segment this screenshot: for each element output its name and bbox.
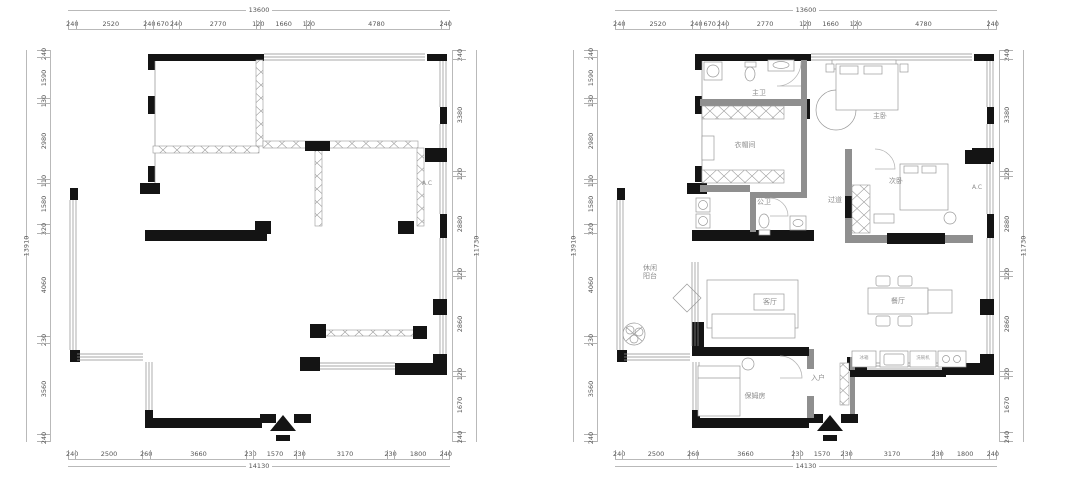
dim-total-top: 13600 (615, 6, 997, 14)
dim-segment: 3380 (1000, 59, 1013, 171)
room-label-ac-right: A.C (972, 184, 982, 192)
dim-segment: 1800 (941, 450, 989, 459)
room-label-dining-room: 餐厅 (891, 297, 905, 305)
dim-segment: 2770 (726, 20, 802, 29)
dim-segment: 1670 (1000, 376, 1013, 432)
room-label-second-bedroom: 次卧 (889, 177, 903, 185)
dim-segment: 2520 (623, 20, 693, 29)
dim-segment: 2500 (622, 450, 688, 459)
balcony-line1: 休闲 (643, 264, 657, 272)
room-label-hallway: 过道 (828, 196, 842, 204)
dim-segment: 240 (1000, 50, 1013, 59)
dim-segment: 2860 (1000, 276, 1013, 371)
dim-segment: 240 (692, 20, 700, 29)
room-label-entry: 入户 (811, 374, 825, 382)
room-label-nanny-room: 保姆房 (745, 392, 766, 400)
dim-segment: 1570 (800, 450, 842, 459)
dim-segment: 4780 (857, 20, 988, 29)
dim-segment: 260 (689, 450, 697, 459)
dim-segment: 240 (988, 20, 997, 29)
room-label-living-room: 客厅 (763, 298, 777, 306)
dim-segment: 2980 (584, 103, 597, 179)
dim-chain-right: 2403380120288012028601201670240 (999, 50, 1013, 442)
dim-total-left: 13910 (567, 50, 579, 442)
dim-total-bottom: 14130 (615, 462, 997, 470)
room-label-dishwasher: 洗碗机 (916, 355, 930, 363)
dim-chain-top: 2402520240670240277012016601204780240 (615, 20, 997, 30)
dim-segment: 240 (719, 20, 727, 29)
room-label-master-bedroom: 主卧 (873, 112, 887, 120)
room-label-fridge: 冰箱 (860, 355, 869, 363)
walls-drawing-furnished (612, 46, 997, 446)
dim-segment: 1580 (584, 183, 597, 224)
room-label-guest-bath: 公卫 (757, 198, 771, 206)
dim-segment: 1590 (584, 57, 597, 98)
dim-segment: 240 (989, 450, 997, 459)
dim-segment: 3170 (850, 450, 934, 459)
room-label-balcony: 休闲 阳台 (643, 264, 657, 280)
dim-segment: 4060 (584, 233, 597, 337)
dim-segment: 320 (584, 224, 597, 233)
dim-total-right: 11730 (1017, 50, 1029, 442)
floor-plan-sheet: 13600 2402520240670240277012016601204780… (0, 0, 1080, 491)
room-label-master-bath: 主卫 (752, 89, 766, 97)
dim-segment: 3560 (584, 343, 597, 434)
dim-segment: 230 (793, 450, 800, 459)
room-label-cloakroom: 衣帽间 (735, 141, 756, 149)
dim-segment: 3660 (697, 450, 794, 459)
dim-segment: 240 (615, 450, 622, 459)
wardrobes (702, 106, 870, 405)
balcony-line2: 阳台 (643, 272, 657, 280)
dim-segment: 240 (584, 50, 597, 57)
dim-segment: 230 (843, 450, 850, 459)
dim-segment: 240 (584, 434, 597, 442)
dim-segment: 240 (615, 20, 623, 29)
dim-segment: 2880 (1000, 176, 1013, 272)
dim-segment: 230 (584, 336, 597, 343)
floor-plan-furnished: 13600 2402520240670240277012016601204780… (0, 0, 1080, 491)
dim-chain-left: 24015901302980110158032040602303560240 (584, 50, 598, 442)
dim-segment: 1660 (807, 20, 853, 29)
dim-chain-bottom: 24025002603660230157023031702301800240 (615, 450, 997, 460)
dim-segment: 230 (934, 450, 941, 459)
dim-segment: 240 (1000, 432, 1013, 442)
plant-icon (623, 323, 645, 345)
